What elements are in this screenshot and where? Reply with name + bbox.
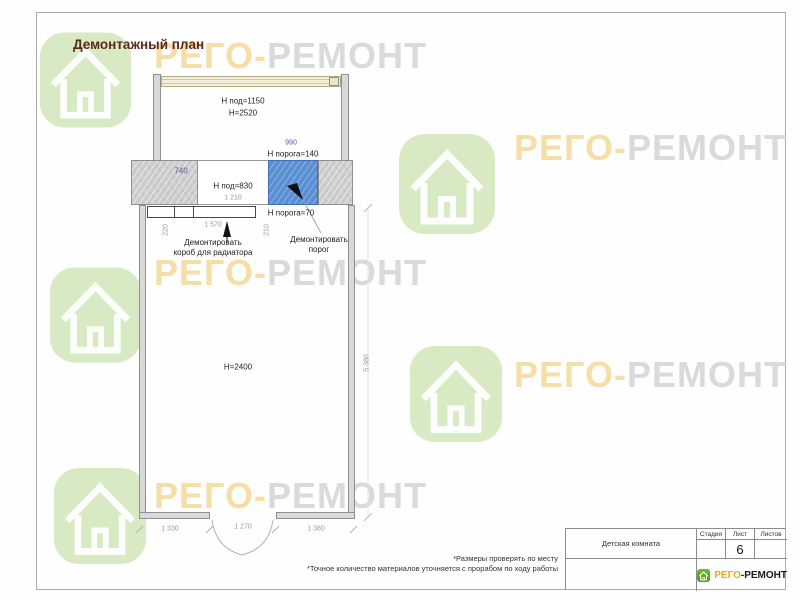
title-block: Детская комната Стадия Лист Листов 6 РЕГ… xyxy=(565,528,786,590)
dimension-tick xyxy=(136,526,143,533)
sheet-label: Лист xyxy=(726,529,754,539)
dim-740: 740 xyxy=(174,167,187,176)
note-material-quantity: *Точное количество материалов уточняется… xyxy=(307,564,558,574)
floor-plan: Н под=1150 Н=2520 740 990 Н порога=140 Н… xyxy=(0,0,800,600)
room-wall-bottom-left xyxy=(139,512,210,519)
dim-1330: 1 330 xyxy=(161,526,179,533)
threshold-height-140: Н порога=140 xyxy=(268,150,319,159)
radiator-label-line1: Демонтировать xyxy=(174,238,253,248)
threshold-label-line1: Демонтировать xyxy=(290,235,348,245)
logo-text: РЕГО-РЕМОНТ xyxy=(714,570,787,581)
radiator-box-divider xyxy=(174,207,175,217)
demolition-zone xyxy=(268,160,318,205)
drawing-notes: *Размеры проверять по месту *Точное коли… xyxy=(307,554,558,573)
sheets-label: Листов xyxy=(755,529,787,539)
dimension-tick xyxy=(206,526,213,533)
room-wall-left xyxy=(139,205,146,519)
company-logo: РЕГО-РЕМОНТ xyxy=(697,559,787,591)
dimension-tick xyxy=(350,526,357,533)
radiator-label-line2: короб для радиатора xyxy=(174,248,253,258)
dimension-tick xyxy=(272,526,279,533)
underwindow-height-830: Н под=830 xyxy=(213,182,252,191)
room-ceiling-height: Н=2400 xyxy=(224,363,252,372)
dim-1270: 1 270 xyxy=(234,524,252,531)
balcony-underwindow-height: Н под=1150 xyxy=(221,97,264,106)
wall-segment-right xyxy=(318,160,353,205)
radiator-demolition-label: Демонтировать короб для радиатора xyxy=(174,238,253,258)
note-check-dimensions: *Размеры проверять по месту xyxy=(307,554,558,564)
balcony-ceiling-height: Н=2520 xyxy=(229,109,257,118)
logo-house-icon xyxy=(697,562,710,589)
dim-210: 210 xyxy=(264,224,271,236)
drawing-title: Демонтажный план xyxy=(73,37,204,52)
radiator-arrow-icon xyxy=(223,221,231,237)
stage-label: Стадия xyxy=(697,529,725,539)
dim-990: 990 xyxy=(285,140,297,147)
radiator-box-divider xyxy=(193,207,194,217)
balcony-window-end xyxy=(329,77,339,86)
dim-1570: 1 570 xyxy=(204,222,222,229)
dim-1210: 1 210 xyxy=(224,195,242,202)
dim-5380: 5 380 xyxy=(364,354,371,372)
room-wall-right xyxy=(348,205,355,519)
threshold-label-line2: порог xyxy=(290,245,348,255)
balcony-wall-right xyxy=(341,74,349,161)
balcony-window xyxy=(161,76,341,87)
wall-segment-left xyxy=(131,160,198,205)
dim-1380: 1 380 xyxy=(307,526,325,533)
sheet-number: 6 xyxy=(726,540,754,558)
dim-220: 220 xyxy=(163,224,170,236)
room-wall-bottom-right xyxy=(276,512,355,519)
threshold-demolition-label: Демонтировать порог xyxy=(290,235,348,255)
room-name-cell: Детская комната xyxy=(566,529,696,558)
plan-annotations xyxy=(0,0,800,600)
balcony-wall-left xyxy=(153,74,161,161)
radiator-box xyxy=(147,206,256,218)
demolition-plan-page: РЕГО-РЕМОНТ РЕГО-РЕМОНТ РЕГО-РЕМОНТ РЕГО… xyxy=(0,0,800,600)
dimension-tick xyxy=(364,513,372,521)
threshold-height-70: Н порога=70 xyxy=(268,209,314,218)
dimension-tick xyxy=(364,204,372,212)
